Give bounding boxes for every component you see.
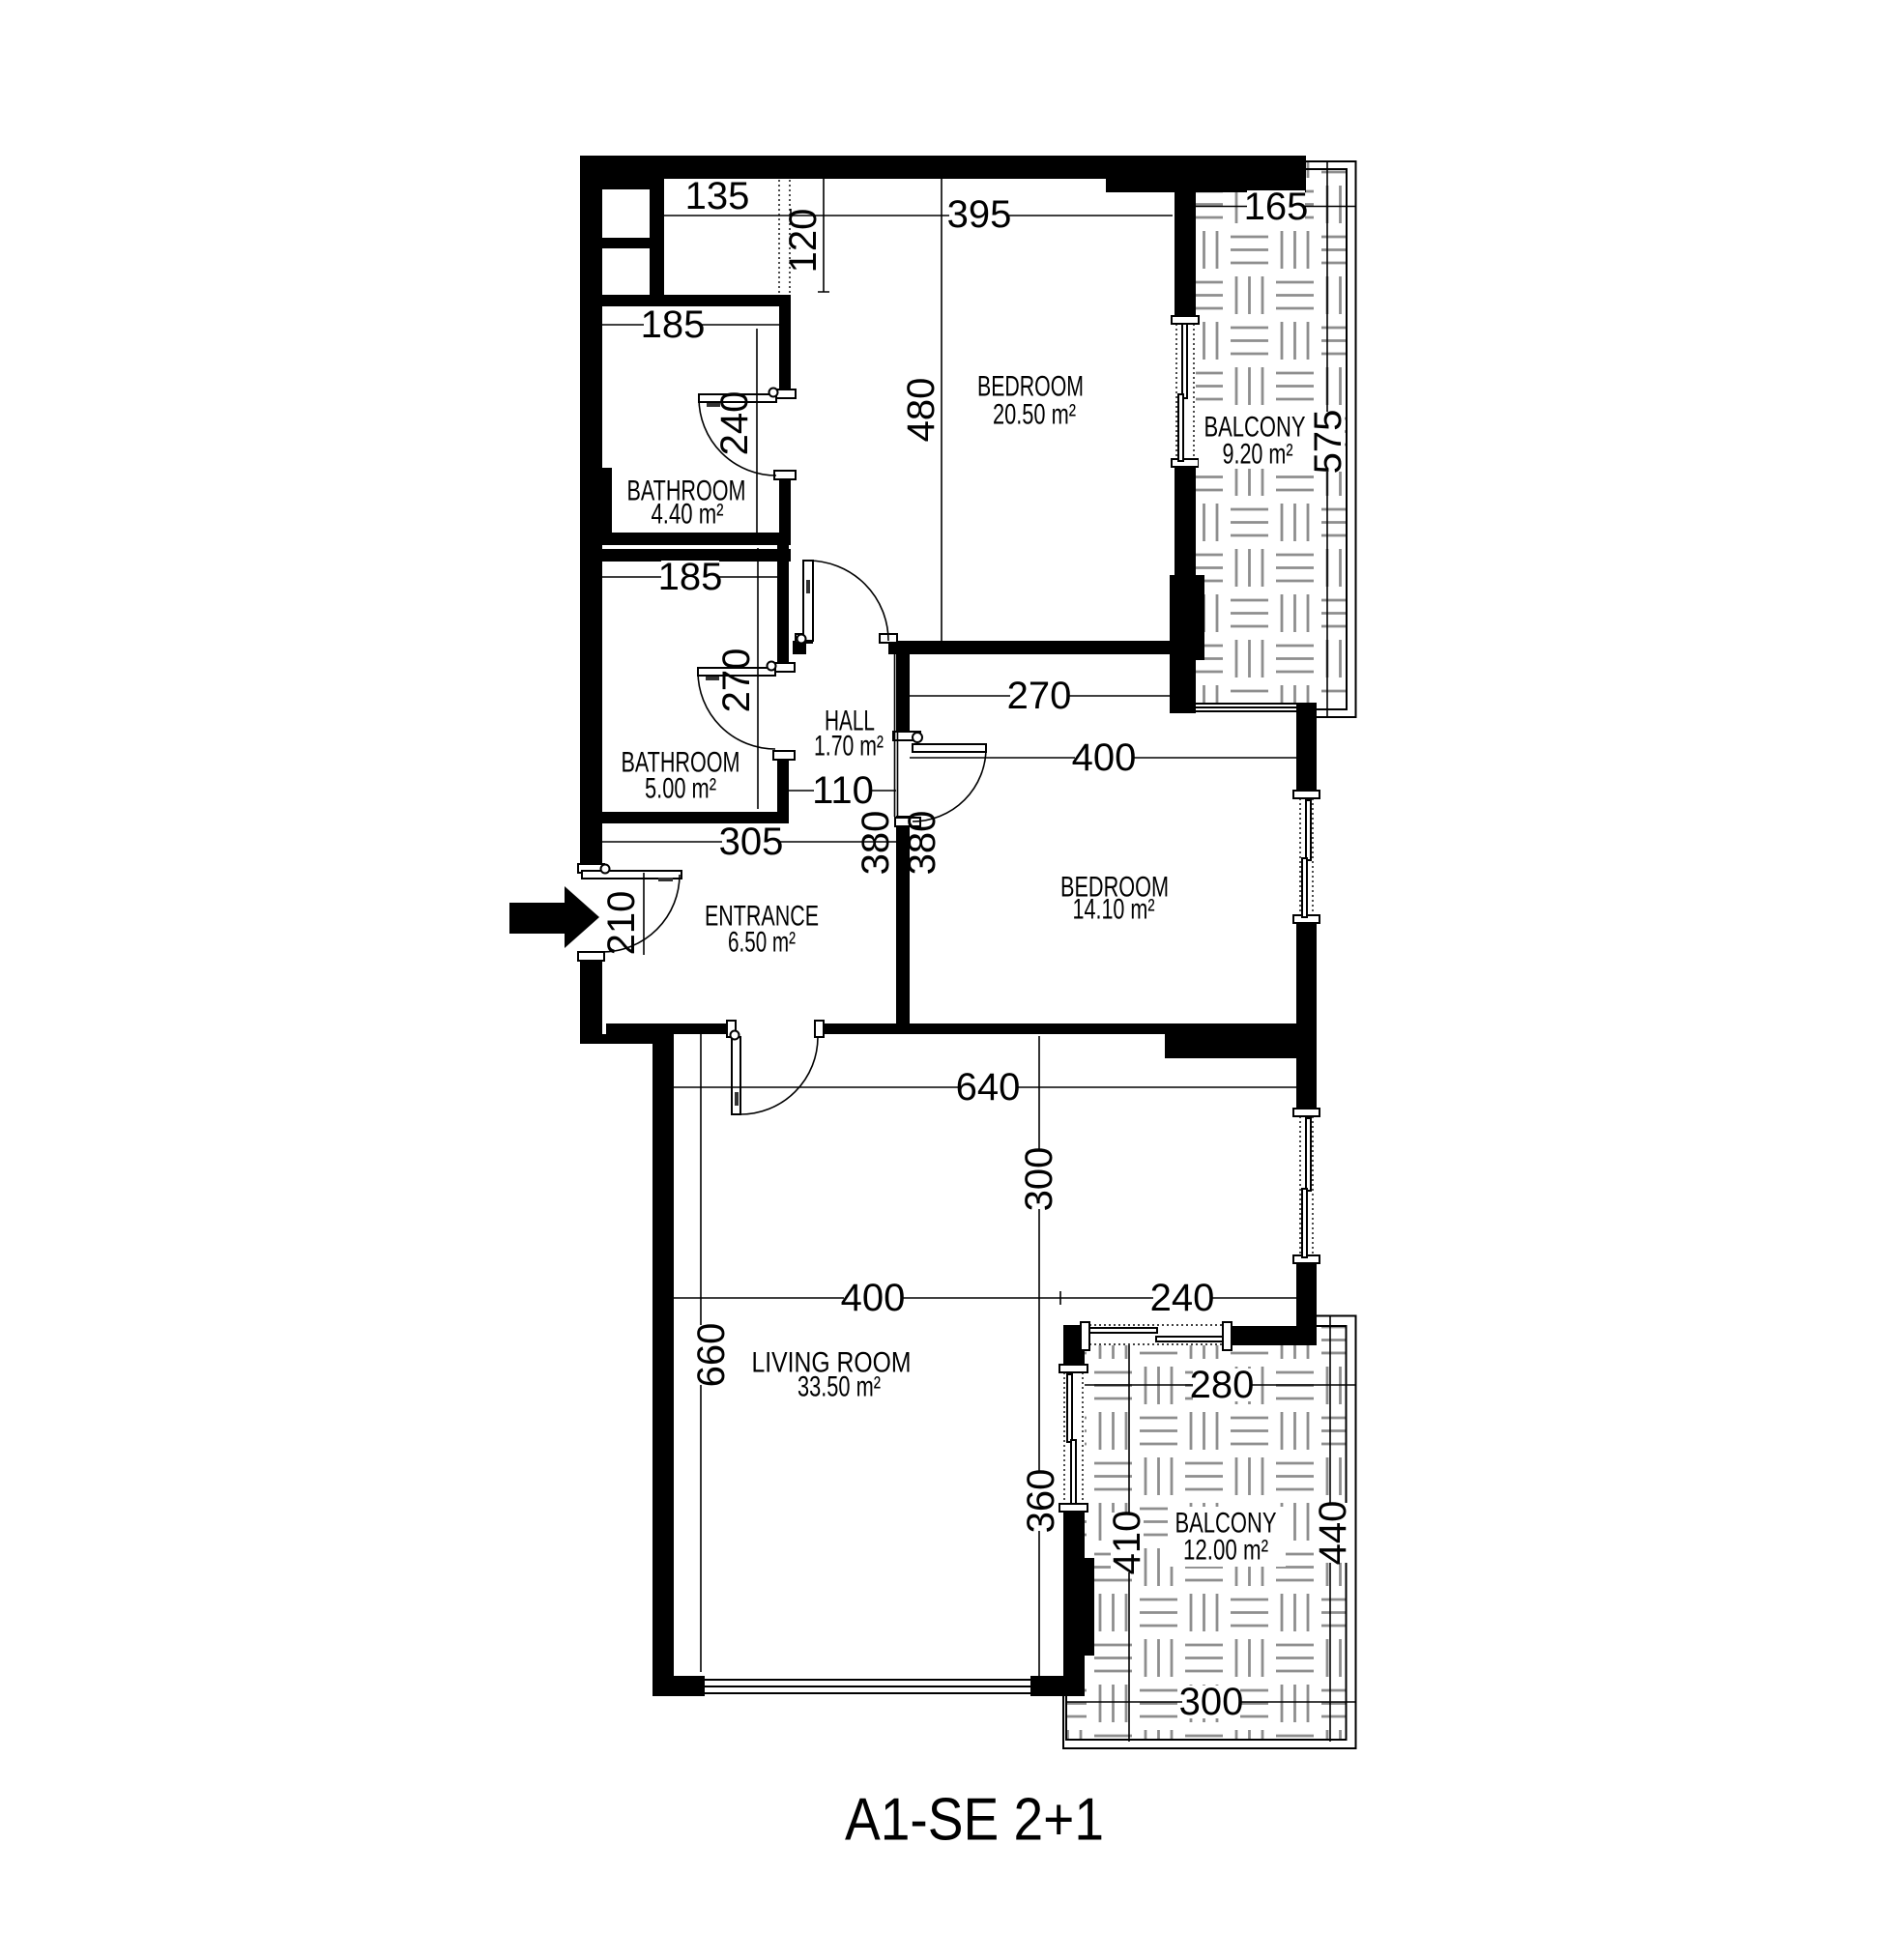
svg-text:575: 575: [1307, 410, 1349, 475]
svg-text:1.70 m²: 1.70 m²: [814, 731, 884, 763]
svg-text:410: 410: [1106, 1511, 1148, 1575]
svg-text:380: 380: [901, 811, 943, 876]
svg-text:305: 305: [719, 821, 784, 863]
svg-text:360: 360: [1020, 1469, 1062, 1534]
svg-text:300: 300: [1179, 1681, 1244, 1723]
svg-text:240: 240: [1150, 1277, 1215, 1319]
svg-text:12.00 m²: 12.00 m²: [1183, 1535, 1268, 1567]
svg-text:480: 480: [900, 378, 942, 443]
svg-text:210: 210: [600, 891, 643, 956]
svg-text:5.00 m²: 5.00 m²: [645, 773, 716, 805]
svg-text:660: 660: [690, 1323, 733, 1388]
svg-text:240: 240: [713, 391, 756, 456]
svg-text:6.50 m²: 6.50 m²: [728, 927, 796, 959]
svg-text:280: 280: [1190, 1364, 1255, 1406]
svg-text:4.40 m²: 4.40 m²: [652, 499, 724, 531]
svg-text:300: 300: [1018, 1147, 1060, 1212]
svg-text:120: 120: [782, 209, 825, 274]
svg-text:395: 395: [947, 193, 1012, 236]
svg-text:440: 440: [1312, 1501, 1354, 1566]
svg-text:165: 165: [1244, 186, 1309, 228]
svg-text:270: 270: [715, 649, 758, 713]
svg-text:640: 640: [956, 1066, 1021, 1109]
svg-text:20.50 m²: 20.50 m²: [993, 399, 1076, 431]
svg-text:110: 110: [812, 769, 874, 812]
svg-text:135: 135: [685, 175, 750, 217]
svg-text:A1-SE 2+1: A1-SE 2+1: [845, 1787, 1104, 1854]
svg-text:400: 400: [1072, 736, 1137, 779]
svg-text:14.10 m²: 14.10 m²: [1073, 894, 1155, 926]
svg-text:9.20 m²: 9.20 m²: [1223, 439, 1293, 471]
svg-text:33.50 m²: 33.50 m²: [797, 1371, 881, 1403]
svg-text:185: 185: [641, 303, 706, 346]
svg-text:400: 400: [841, 1277, 906, 1319]
svg-text:380: 380: [855, 811, 897, 876]
svg-text:270: 270: [1007, 675, 1072, 717]
svg-text:185: 185: [658, 556, 723, 598]
